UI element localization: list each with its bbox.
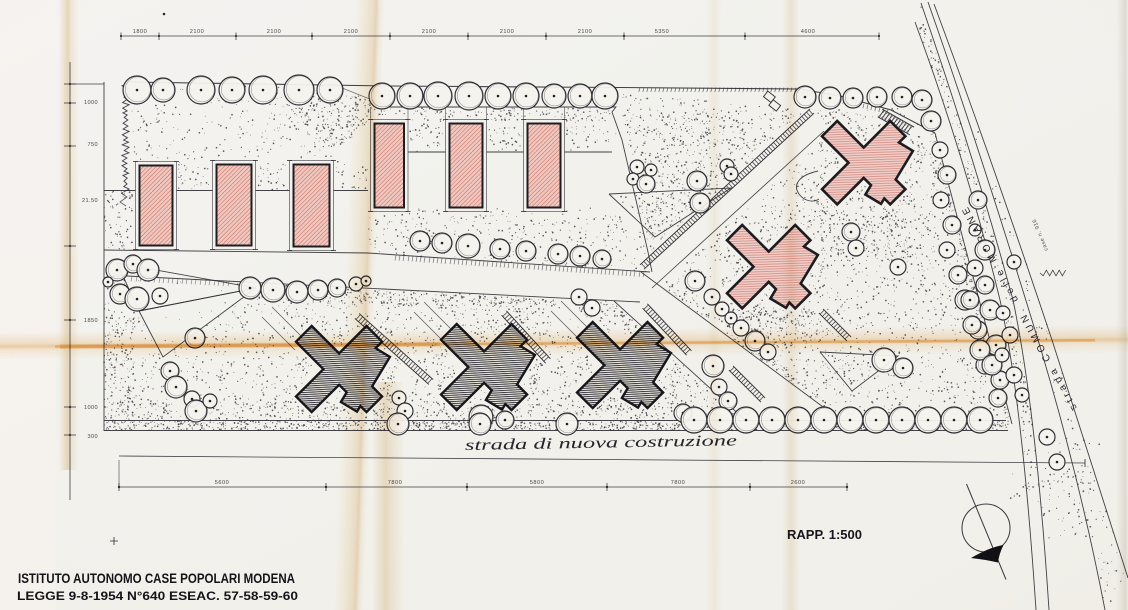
svg-text:1000: 1000	[84, 405, 98, 411]
svg-text:2100: 2100	[267, 29, 281, 35]
svg-text:1000: 1000	[84, 100, 98, 106]
svg-text:ISTITUTO AUTONOMO CASE POPOLA: ISTITUTO AUTONOMO CASE POPOLARI MODENA	[18, 571, 295, 586]
svg-text:5800: 5800	[530, 480, 544, 486]
svg-text:750: 750	[87, 142, 98, 148]
svg-text:2100: 2100	[190, 29, 204, 35]
svg-text:21.50: 21.50	[82, 198, 98, 204]
svg-text:2100: 2100	[422, 29, 436, 35]
svg-text:300: 300	[87, 434, 98, 440]
svg-text:LEGGE 9-8-1954 N°640 ESEA: LEGGE 9-8-1954 N°640 ESEAC. 57-58-59-60	[17, 589, 298, 603]
svg-text:2100: 2100	[578, 29, 592, 35]
svg-text:1850: 1850	[84, 318, 98, 324]
svg-text:7800: 7800	[671, 480, 685, 486]
svg-text:1800: 1800	[133, 29, 147, 35]
svg-text:5350: 5350	[655, 29, 669, 35]
svg-text:4600: 4600	[801, 29, 815, 35]
svg-text:5600: 5600	[215, 480, 229, 486]
svg-text:2100: 2100	[500, 29, 514, 35]
